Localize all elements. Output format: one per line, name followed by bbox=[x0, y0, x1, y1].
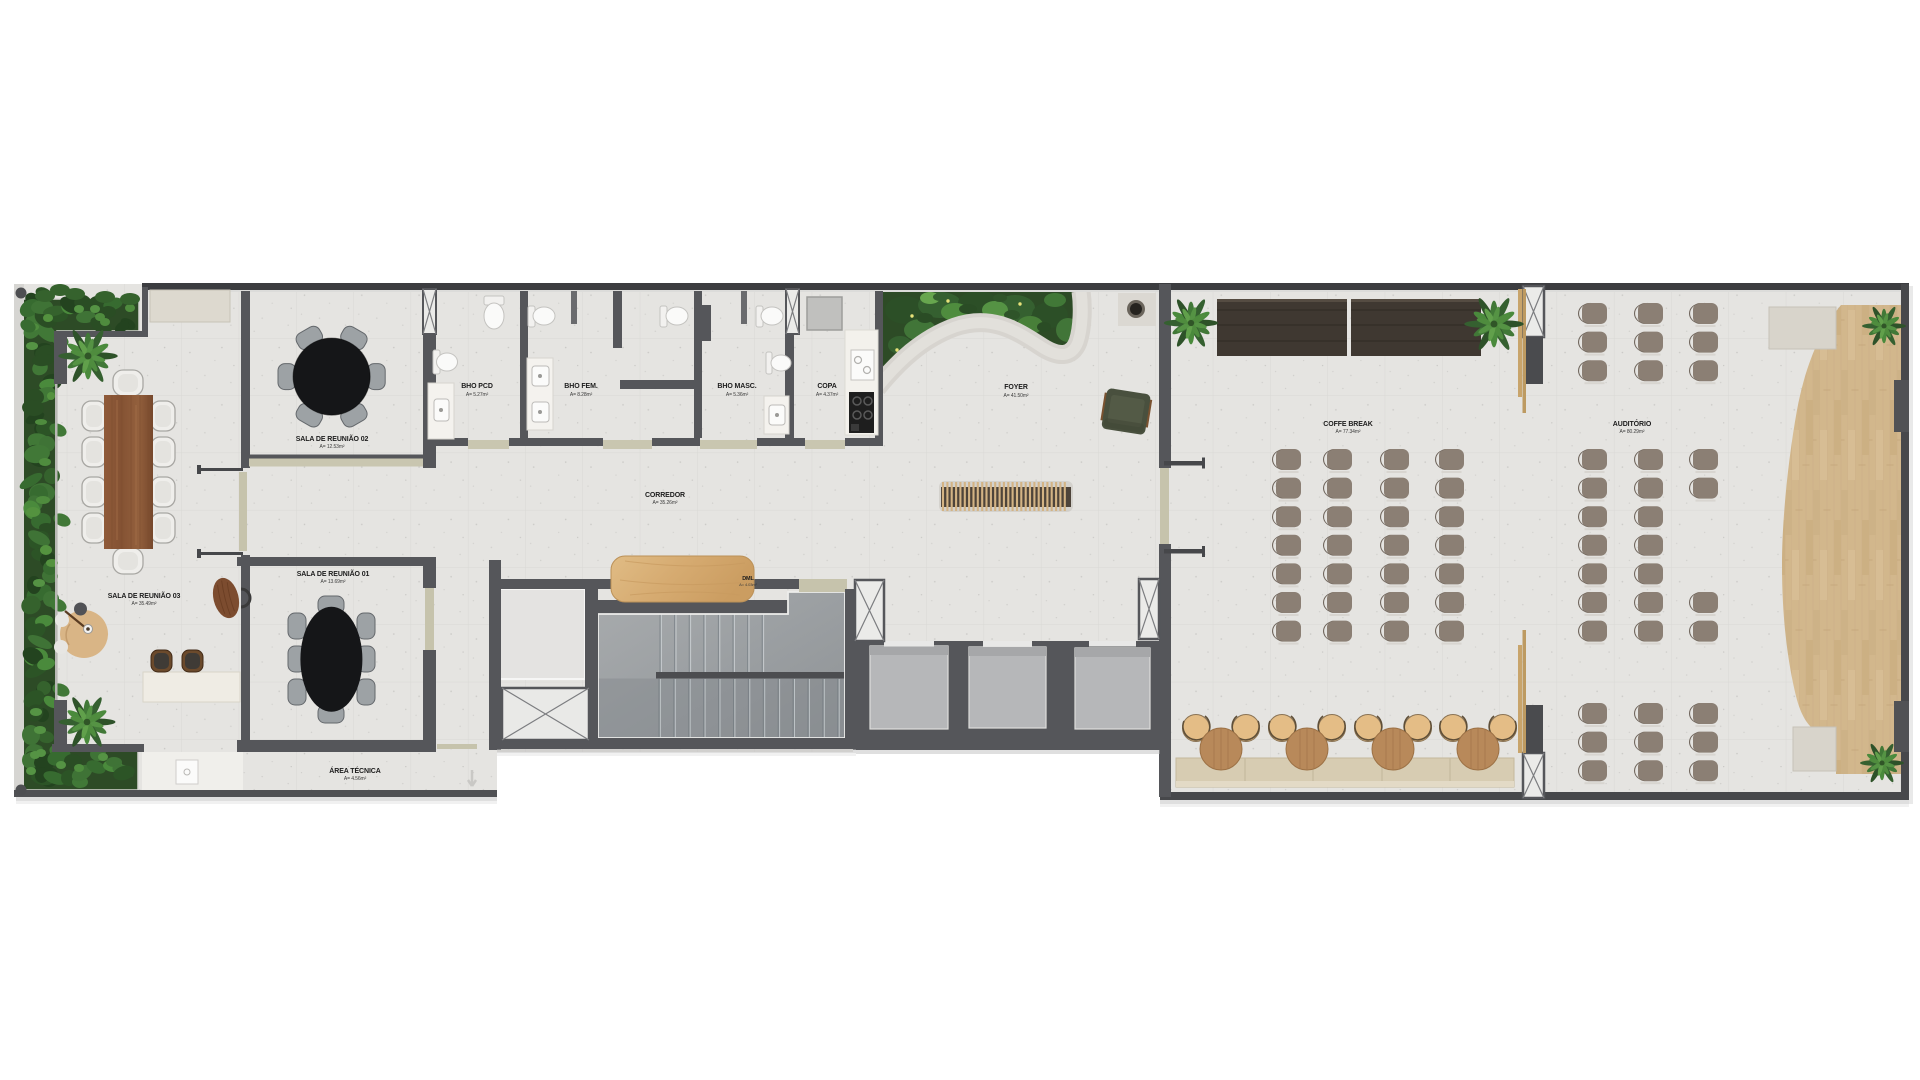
svg-text:A= 13.69m²: A= 13.69m² bbox=[321, 579, 346, 585]
svg-text:SALA DE REUNIÃO 02: SALA DE REUNIÃO 02 bbox=[296, 434, 369, 443]
svg-text:COPA: COPA bbox=[817, 383, 836, 390]
svg-text:A= 80.29m²: A= 80.29m² bbox=[1620, 429, 1645, 435]
svg-text:ÁREA TÉCNICA: ÁREA TÉCNICA bbox=[329, 766, 380, 775]
svg-text:A= 5.27m²: A= 5.27m² bbox=[466, 392, 489, 398]
svg-text:A= 4.37m²: A= 4.37m² bbox=[816, 392, 839, 398]
svg-text:A= 77.34m²: A= 77.34m² bbox=[1336, 429, 1361, 435]
svg-text:A= 8.28m²: A= 8.28m² bbox=[570, 392, 593, 398]
svg-text:BHO FEM.: BHO FEM. bbox=[564, 383, 598, 390]
svg-text:A= 35.49m²: A= 35.49m² bbox=[132, 601, 157, 607]
svg-text:A= 5.36m²: A= 5.36m² bbox=[726, 392, 749, 398]
svg-text:SALA DE REUNIÃO 03: SALA DE REUNIÃO 03 bbox=[108, 591, 181, 600]
svg-text:A= 35.26m²: A= 35.26m² bbox=[653, 500, 678, 506]
svg-text:BHO PCD: BHO PCD bbox=[461, 383, 493, 390]
svg-text:BHO MASC.: BHO MASC. bbox=[717, 383, 756, 390]
svg-text:CORREDOR: CORREDOR bbox=[645, 492, 685, 499]
svg-text:COFFE BREAK: COFFE BREAK bbox=[1323, 421, 1373, 428]
svg-text:FOYER: FOYER bbox=[1004, 384, 1028, 391]
svg-text:AUDITÓRIO: AUDITÓRIO bbox=[1613, 419, 1652, 428]
svg-text:A= 41.50m²: A= 41.50m² bbox=[1004, 393, 1029, 399]
svg-text:A= 4.56m²: A= 4.56m² bbox=[344, 776, 367, 782]
svg-text:SALA DE REUNIÃO 01: SALA DE REUNIÃO 01 bbox=[297, 569, 370, 578]
svg-text:A= 4.03m²: A= 4.03m² bbox=[739, 582, 757, 587]
svg-text:A= 12.53m²: A= 12.53m² bbox=[320, 444, 345, 450]
